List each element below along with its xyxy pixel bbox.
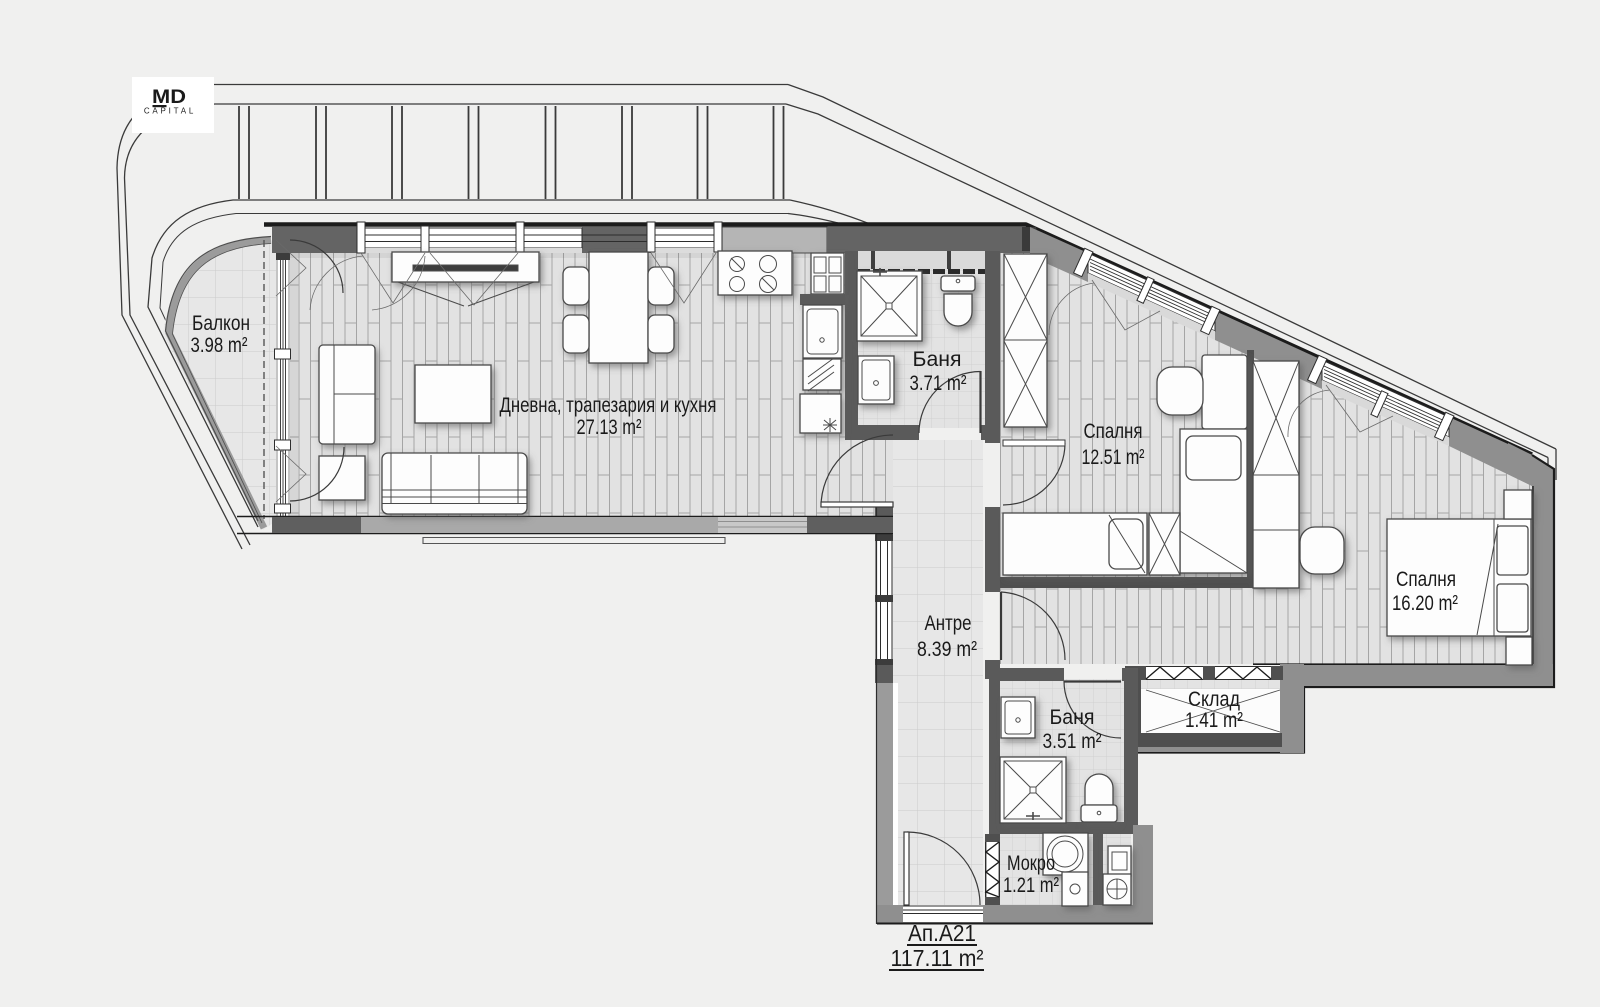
svg-text:8.39 m²: 8.39 m²	[917, 638, 977, 661]
svg-text:1.21 m²: 1.21 m²	[1003, 874, 1059, 897]
svg-text:MD: MD	[152, 87, 186, 108]
svg-text:117.11 m²: 117.11 m²	[891, 945, 984, 971]
svg-text:Спалня: Спалня	[1396, 568, 1456, 591]
svg-text:Ап.А21: Ап.А21	[908, 920, 976, 946]
svg-text:27.13 m²: 27.13 m²	[577, 416, 642, 439]
svg-text:3.98 m²: 3.98 m²	[191, 334, 248, 357]
svg-text:Склад: Склад	[1188, 688, 1240, 711]
svg-text:12.51 m²: 12.51 m²	[1082, 446, 1145, 469]
svg-text:Баня: Баня	[1050, 706, 1095, 729]
svg-text:Баня: Баня	[913, 348, 962, 371]
svg-text:Мокро: Мокро	[1007, 852, 1055, 875]
svg-text:3.71 m²: 3.71 m²	[910, 372, 967, 395]
svg-text:Спалня: Спалня	[1084, 420, 1143, 443]
svg-text:CAPITAL: CAPITAL	[144, 107, 196, 116]
svg-text:3.51 m²: 3.51 m²	[1043, 730, 1102, 753]
svg-text:16.20 m²: 16.20 m²	[1392, 592, 1458, 615]
svg-text:Балкон: Балкон	[192, 312, 250, 335]
svg-text:Дневна, трапезария и кухня: Дневна, трапезария и кухня	[500, 394, 717, 417]
svg-text:Антре: Антре	[925, 612, 972, 635]
svg-text:1.41 m²: 1.41 m²	[1185, 709, 1243, 732]
